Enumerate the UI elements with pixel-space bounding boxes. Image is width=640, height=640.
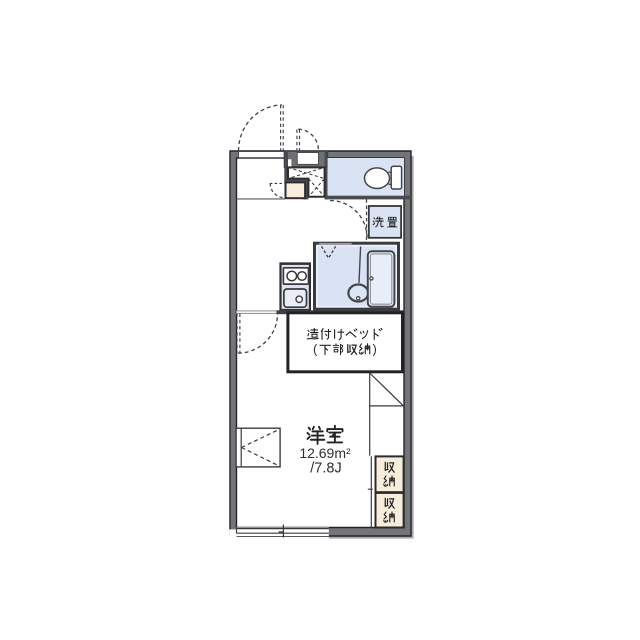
svg-text:12.69m²: 12.69m² xyxy=(299,445,351,461)
svg-text:/7.8J: /7.8J xyxy=(310,460,341,476)
svg-text:): ) xyxy=(373,342,377,357)
svg-text:(: ( xyxy=(313,342,318,357)
